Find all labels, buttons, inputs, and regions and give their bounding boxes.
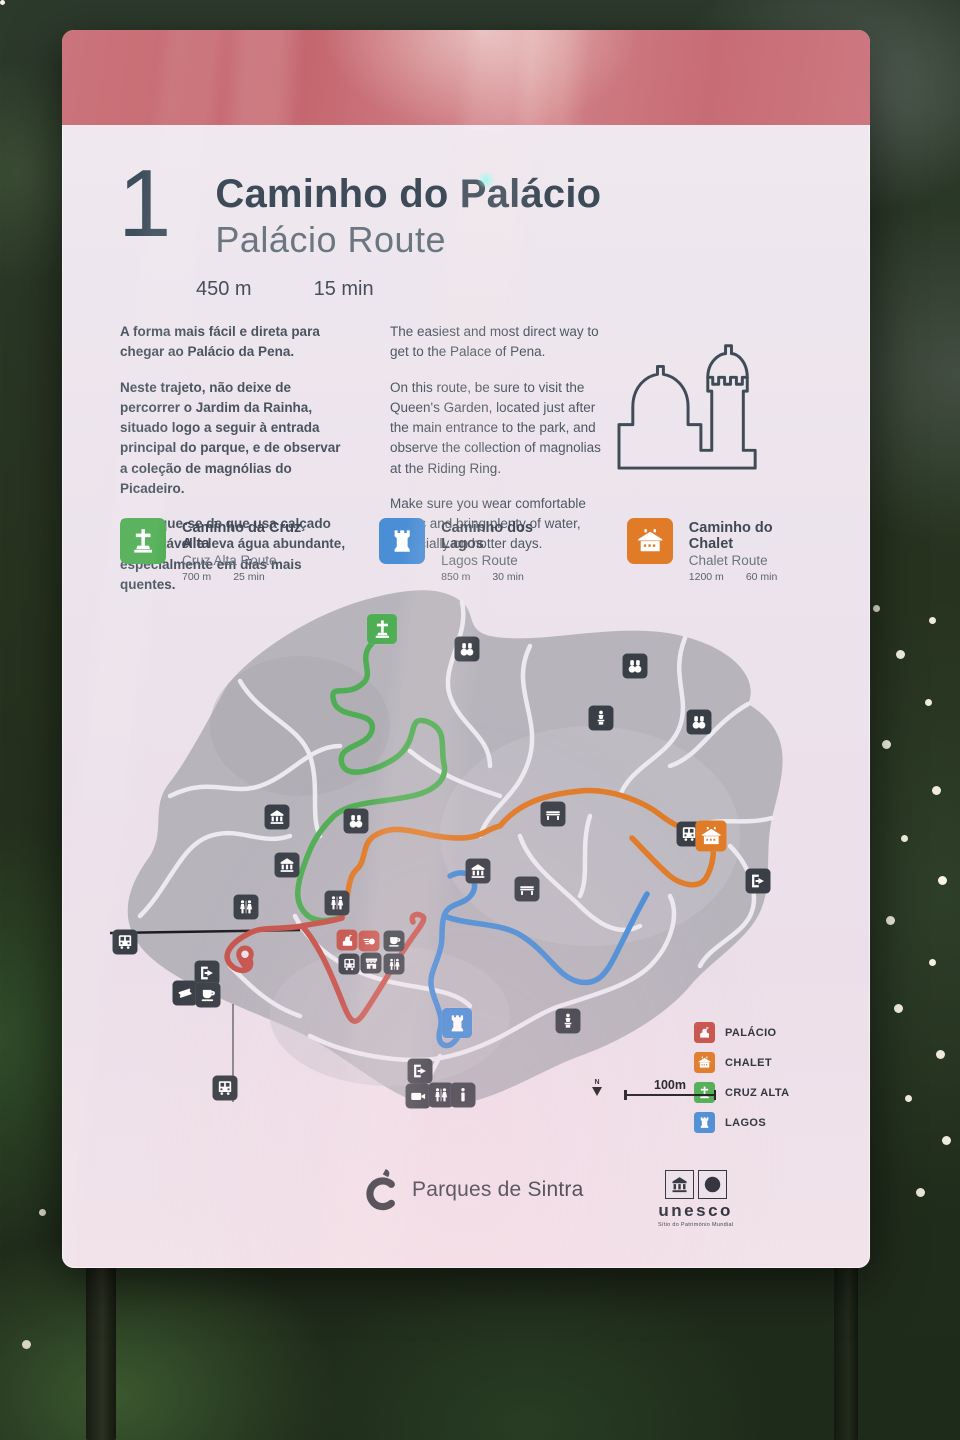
route-distance: 850 m: [441, 571, 470, 583]
wc-icon: [234, 895, 259, 920]
route-duration: 25 min: [233, 571, 265, 583]
sign-post-right: [834, 1258, 858, 1440]
bus-icon: [339, 954, 360, 975]
statue-icon: [589, 706, 614, 731]
background-flowers: [0, 0, 5, 5]
unesco-temple-icon: [665, 1170, 694, 1199]
binoculars-icon: [687, 710, 712, 735]
museum-icon: [265, 805, 290, 830]
scale-label: 100m: [654, 1078, 686, 1092]
tickets-icon: [359, 931, 380, 952]
other-routes-legend: Caminho da Cruz Alta Cruz Alta Route 700…: [120, 518, 820, 583]
legend-row-chalet: CHALET: [694, 1052, 790, 1073]
tower-icon: [442, 1008, 472, 1038]
ticket-icon: [173, 981, 198, 1006]
route-number: 1: [118, 158, 169, 249]
route-item-cruz-alta: Caminho da Cruz Alta Cruz Alta Route 700…: [120, 518, 331, 583]
title-row: 1 Caminho do Palácio Palácio Route: [118, 158, 601, 261]
route-distance: 450 m: [196, 278, 252, 301]
parques-logo-icon: [360, 1166, 398, 1214]
paragraph-pt: A forma mais fácil e direta para chegar …: [120, 322, 350, 363]
route-duration: 30 min: [492, 571, 524, 583]
parques-de-sintra-logo: Parques de Sintra: [360, 1166, 584, 1214]
north-label: N: [594, 1079, 599, 1086]
route-distance: 1200 m: [689, 571, 724, 583]
info-icon: [451, 1083, 476, 1108]
legend-row-palacio: PALÁCIO: [694, 1022, 790, 1043]
bench-icon: [515, 877, 540, 902]
route-distance: 700 m: [182, 571, 211, 583]
paragraph-en: On this route, be sure to visit the Quee…: [390, 378, 612, 479]
palace-icon: [337, 930, 358, 951]
brand-name: Parques de Sintra: [412, 1178, 584, 1202]
route-name: Caminho do Chalet: [689, 520, 820, 552]
world-heritage-emblem-icon: [698, 1170, 727, 1199]
paragraph-pt: Neste trajeto, não deixe de percorrer o …: [120, 378, 350, 500]
route-duration: 60 min: [746, 571, 778, 583]
bus-icon: [113, 930, 138, 955]
binoculars-icon: [344, 809, 369, 834]
cafe-icon: [196, 983, 221, 1008]
sign-post-left: [86, 1258, 116, 1440]
legend-label: CRUZ ALTA: [725, 1087, 790, 1099]
sign-panel: 1 Caminho do Palácio Palácio Route 450 m…: [62, 30, 870, 1268]
legend-label: LAGOS: [725, 1117, 766, 1129]
exit-icon: [746, 869, 771, 894]
museum-icon: [466, 859, 491, 884]
legend-row-lagos: LAGOS: [694, 1112, 790, 1133]
legend-label: PALÁCIO: [725, 1027, 776, 1039]
route-item-chalet: Caminho do Chalet Chalet Route 1200 m 60…: [627, 518, 820, 583]
chalet-icon: [627, 518, 673, 564]
route-subname: Chalet Route: [689, 553, 820, 568]
cafe-icon: [384, 931, 405, 952]
bus-icon: [213, 1076, 238, 1101]
chalet-icon: [696, 821, 727, 852]
route-name: Caminho da Cruz Alta: [182, 520, 331, 552]
page-title: Caminho do Palácio: [215, 172, 601, 217]
palace-icon: [694, 1022, 715, 1043]
park-map: PALÁCIO CHALET CRUZ ALTA LAGOS N 100m: [110, 586, 805, 1142]
tower-icon: [694, 1112, 715, 1133]
pin-icon: [230, 943, 260, 973]
unesco-logo: unesco Sítio do Património Mundial: [658, 1170, 733, 1228]
scale-bar: 100m: [624, 1078, 716, 1096]
shop-icon: [361, 953, 382, 974]
cross-icon: [120, 518, 166, 564]
route-subname: Lagos Route: [441, 553, 579, 568]
binoculars-icon: [623, 654, 648, 679]
statue-icon: [556, 1009, 581, 1034]
unesco-caption: Sítio do Património Mundial: [658, 1222, 733, 1228]
route-stats: 450 m 15 min: [196, 278, 374, 301]
route-duration: 15 min: [314, 278, 374, 301]
wc-icon: [325, 891, 350, 916]
camera-icon: [406, 1084, 431, 1109]
unesco-name: unesco: [658, 1201, 733, 1221]
legend-label: CHALET: [725, 1057, 772, 1069]
binoculars-icon: [455, 637, 480, 662]
tower-icon: [379, 518, 425, 564]
header-band: [62, 30, 870, 125]
paragraph-en: The easiest and most direct way to get t…: [390, 322, 612, 363]
north-arrow-icon: N: [592, 1079, 602, 1096]
exit-icon: [408, 1059, 433, 1084]
page-subtitle: Palácio Route: [215, 219, 601, 261]
route-item-lagos: Caminho dos Lagos Lagos Route 850 m 30 m…: [379, 518, 579, 583]
route-name: Caminho dos Lagos: [441, 520, 579, 552]
palace-outline-drawing: [607, 326, 779, 474]
cross-icon: [367, 614, 397, 644]
chalet-icon: [694, 1052, 715, 1073]
route-subname: Cruz Alta Route: [182, 553, 331, 568]
museum-icon: [275, 853, 300, 878]
map-scale-group: N 100m: [592, 1078, 716, 1096]
wc-icon: [384, 954, 405, 975]
bench-icon: [541, 802, 566, 827]
